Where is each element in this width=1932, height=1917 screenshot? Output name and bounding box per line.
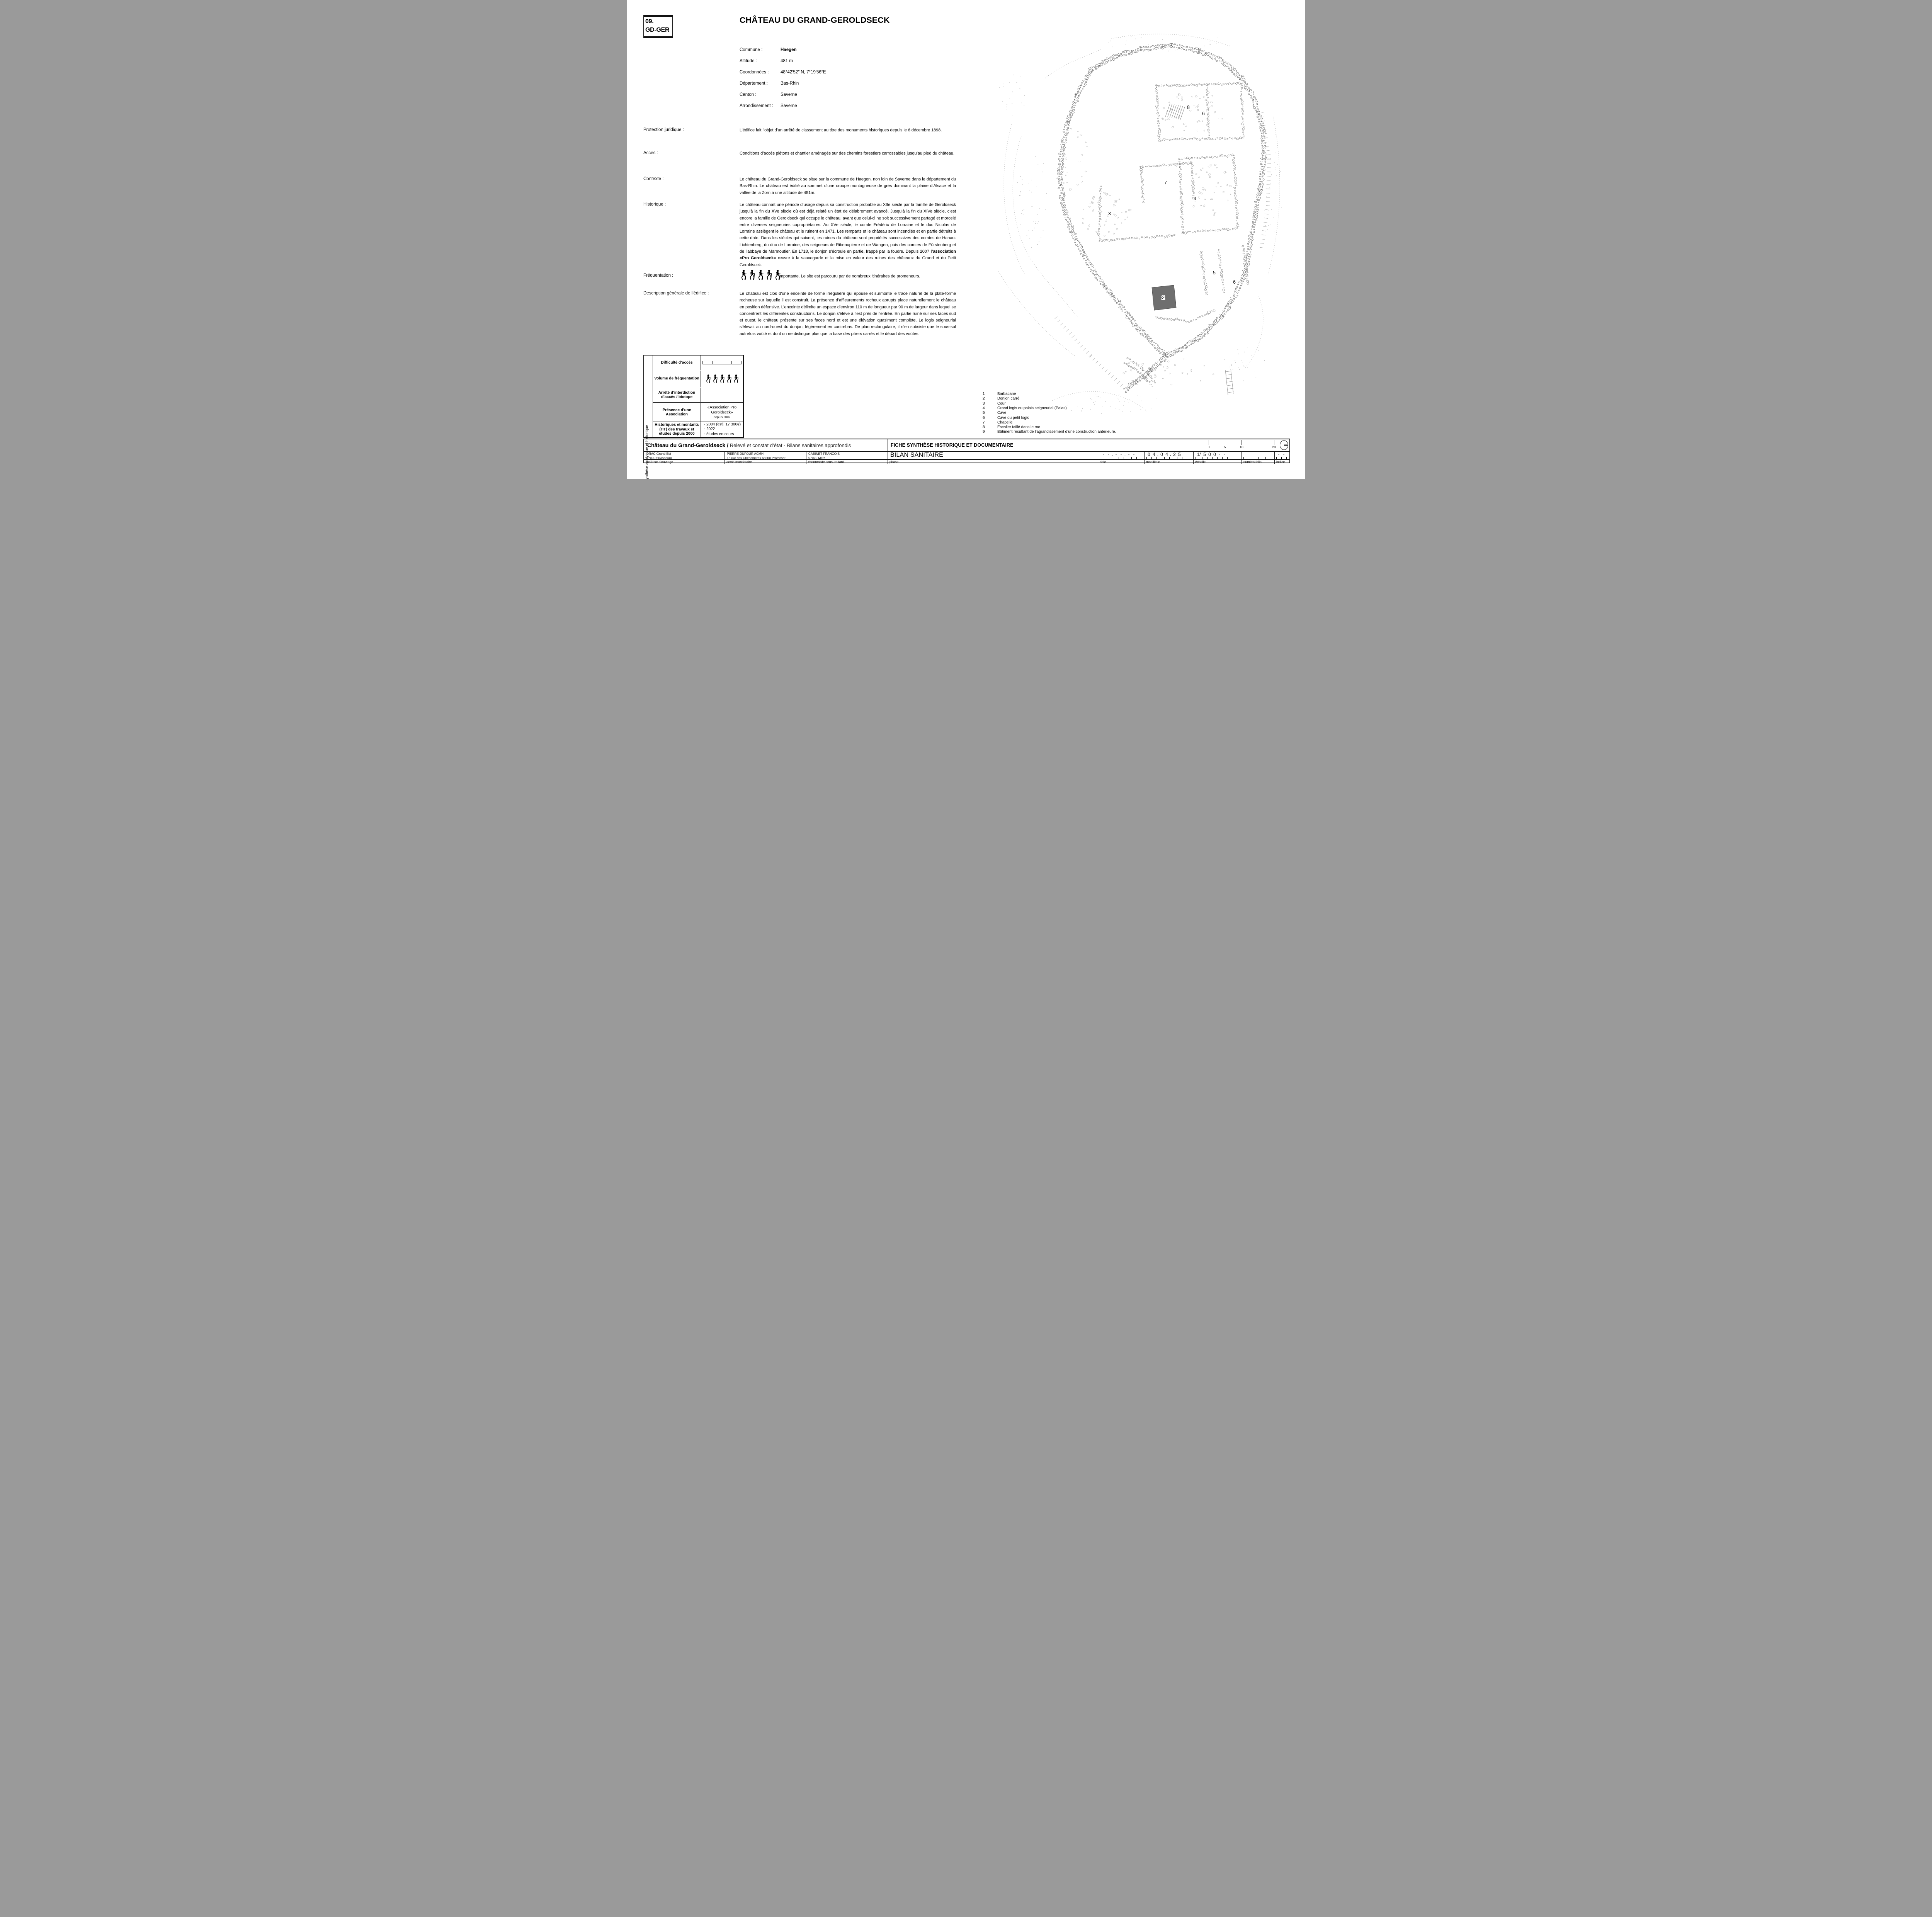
acces-text: Conditions d’accès piétons et chantier a… bbox=[740, 150, 956, 157]
hiker-icon bbox=[719, 374, 725, 383]
metadata-row: Arrondissement :Saverne bbox=[740, 104, 797, 108]
section-label-description: Description générale de l’édifice : bbox=[643, 291, 709, 296]
hiker-icon bbox=[705, 374, 711, 383]
footer-doc-title: FICHE SYNTHÈSE HISTORIQUE ET DOCUMENTAIR… bbox=[888, 442, 1014, 448]
synthesis-table: Synthèse analytique et historique Diffic… bbox=[643, 355, 744, 438]
plan-marker-6: 6 bbox=[1233, 279, 1236, 285]
page-title: CHÂTEAU DU GRAND-GEROLDSECK bbox=[740, 15, 890, 25]
plan-marker-2: 2 bbox=[1162, 295, 1165, 300]
plan-marker-1: 1 bbox=[1141, 367, 1144, 372]
role-label-moa: maîtrise d’ouvrage bbox=[644, 459, 724, 464]
hiker-icon bbox=[748, 270, 756, 280]
company-drac: DRAC Grand-Est67000 Strasbourg bbox=[644, 451, 724, 459]
company-dufour: PIERRE DUFOUR ACMH13 rue des Chenebières… bbox=[724, 451, 806, 459]
plan-marker-7: 7 bbox=[1164, 180, 1167, 185]
synthesis-side-label: Synthèse analytique et historique bbox=[644, 356, 653, 437]
legend-row: 4Grand logis ou palais seigneurial (Pala… bbox=[983, 406, 1067, 410]
association-name: «Association Pro Geroldseck» bbox=[704, 405, 740, 415]
legend-row: 6Cave du petit logis bbox=[983, 416, 1029, 420]
plan-marker-6: 6 bbox=[1202, 111, 1205, 116]
folio-cells bbox=[1242, 451, 1273, 459]
historique-text: Le château connaît une période d’usage d… bbox=[740, 202, 956, 269]
scalebar-number: 0 bbox=[1208, 445, 1210, 449]
table-row-volume: Volume de fréquentation bbox=[653, 371, 743, 387]
scalebar-number: 5 bbox=[1224, 445, 1226, 449]
footer-phase-value: BILAN SANITAIRE bbox=[888, 452, 943, 459]
hiker-icon bbox=[733, 374, 739, 383]
table-row-association: Présence d’une Association «Association … bbox=[653, 403, 743, 422]
modified-label: modifié le bbox=[1144, 459, 1193, 464]
metadata-row: Altitude :481 m bbox=[740, 59, 793, 63]
folio-label: numéro folio bbox=[1242, 459, 1274, 464]
section-label-protection: Protection juridique : bbox=[643, 128, 684, 132]
company-francois: CABINET FRANCOIS57070 Metz bbox=[806, 451, 888, 459]
legend-row: 7Chapelle bbox=[983, 420, 1012, 425]
plan-marker-8: 8 bbox=[1187, 105, 1190, 110]
footer-title-block: Château du Grand-Geroldseck / Relevé et … bbox=[643, 439, 1290, 463]
table-row-historiques: Historiques et montants (HT) des travaux… bbox=[653, 422, 743, 437]
difficulty-bar bbox=[703, 361, 742, 364]
scale-label: échelle bbox=[1193, 459, 1242, 464]
historiques-list: - 2004 (esti. 17 300€)- 2022- études en … bbox=[701, 422, 743, 437]
legend-row: 5Cave bbox=[983, 411, 1006, 415]
castle-plan-svg: 867435621 bbox=[975, 24, 1296, 414]
footer-project-title: Château du Grand-Geroldseck / Relevé et … bbox=[644, 442, 851, 448]
legend-row: 9Bâtiment résultant de l’agrandissement … bbox=[983, 430, 1116, 434]
sheet-code-box: 09. GD-GER bbox=[643, 15, 673, 38]
document-page: 09. GD-GER CHÂTEAU DU GRAND-GEROLDSECK C… bbox=[627, 0, 1305, 479]
legend-row: 2Donjon carré bbox=[983, 396, 1019, 401]
frequentation-text: Importante. Le site est parcouru par de … bbox=[779, 273, 960, 280]
graphic-scale-bar: 051020 bbox=[1098, 439, 1290, 451]
scalebar-number: 10 bbox=[1240, 445, 1243, 449]
protection-text: L’édifice fait l’objet d’un arrêté de cl… bbox=[740, 127, 956, 134]
phase-label: phase bbox=[888, 459, 1098, 464]
date-label: date bbox=[1098, 459, 1144, 464]
section-label-frequentation: Fréquentation : bbox=[643, 273, 673, 278]
frequentation-hiker-icons bbox=[740, 270, 781, 280]
hiker-icon bbox=[726, 374, 732, 383]
role-label-acmh: acmh mandataire bbox=[724, 459, 806, 464]
sheet-code-id: GD-GER bbox=[645, 26, 671, 34]
plan-marker-3: 3 bbox=[1108, 211, 1111, 216]
legend-row: 8Escalier taillé dans le roc bbox=[983, 425, 1040, 429]
scalebar-number: 20 bbox=[1272, 445, 1276, 449]
hiker-icon bbox=[712, 374, 718, 383]
role-label-economiste: économiste sous-traitant bbox=[806, 459, 888, 464]
table-row-difficulte: Difficulté d’accès bbox=[653, 356, 743, 370]
association-note: depuis 2007 bbox=[714, 415, 731, 419]
legend-row: 1Barbacane bbox=[983, 392, 1016, 396]
table-hiker-icons bbox=[705, 374, 739, 383]
hiker-icon bbox=[757, 270, 764, 280]
indice-label: indice bbox=[1274, 459, 1291, 464]
castle-plan-map: 867435621 bbox=[975, 24, 1296, 414]
plan-marker-4: 4 bbox=[1194, 196, 1196, 201]
hiker-icon bbox=[765, 270, 773, 280]
description-text: Le château est clos d’une enceinte de fo… bbox=[740, 291, 956, 337]
section-label-historique: Historique : bbox=[643, 202, 666, 207]
indice-cells: -- bbox=[1274, 451, 1286, 459]
scale-cells: 1/500-- bbox=[1193, 451, 1227, 459]
legend-row: 3Cour bbox=[983, 401, 1006, 406]
date-cells: 04·04·25 bbox=[1144, 451, 1182, 459]
hiker-icon bbox=[740, 270, 747, 280]
north-compass-icon bbox=[1279, 440, 1289, 451]
contexte-text: Le château du Grand-Geroldseck se situe … bbox=[740, 176, 956, 196]
metadata-row: Canton :Saverne bbox=[740, 92, 797, 97]
metadata-row: Coordonnées :48°42′52″ N, 7°19′56″E bbox=[740, 70, 826, 75]
table-row-arrete: Arrêté d’interdiction d’accès / biotope bbox=[653, 388, 743, 403]
metadata-row: Département :Bas-Rhin bbox=[740, 81, 799, 86]
sheet-code-number: 09. bbox=[645, 17, 671, 26]
section-label-contexte: Contexte : bbox=[643, 177, 663, 181]
section-label-acces: Accès : bbox=[643, 151, 658, 155]
modified-cells: --·--·-- bbox=[1098, 451, 1136, 459]
plan-marker-5: 5 bbox=[1213, 270, 1216, 276]
metadata-row: Commune :Haegen bbox=[740, 48, 797, 52]
